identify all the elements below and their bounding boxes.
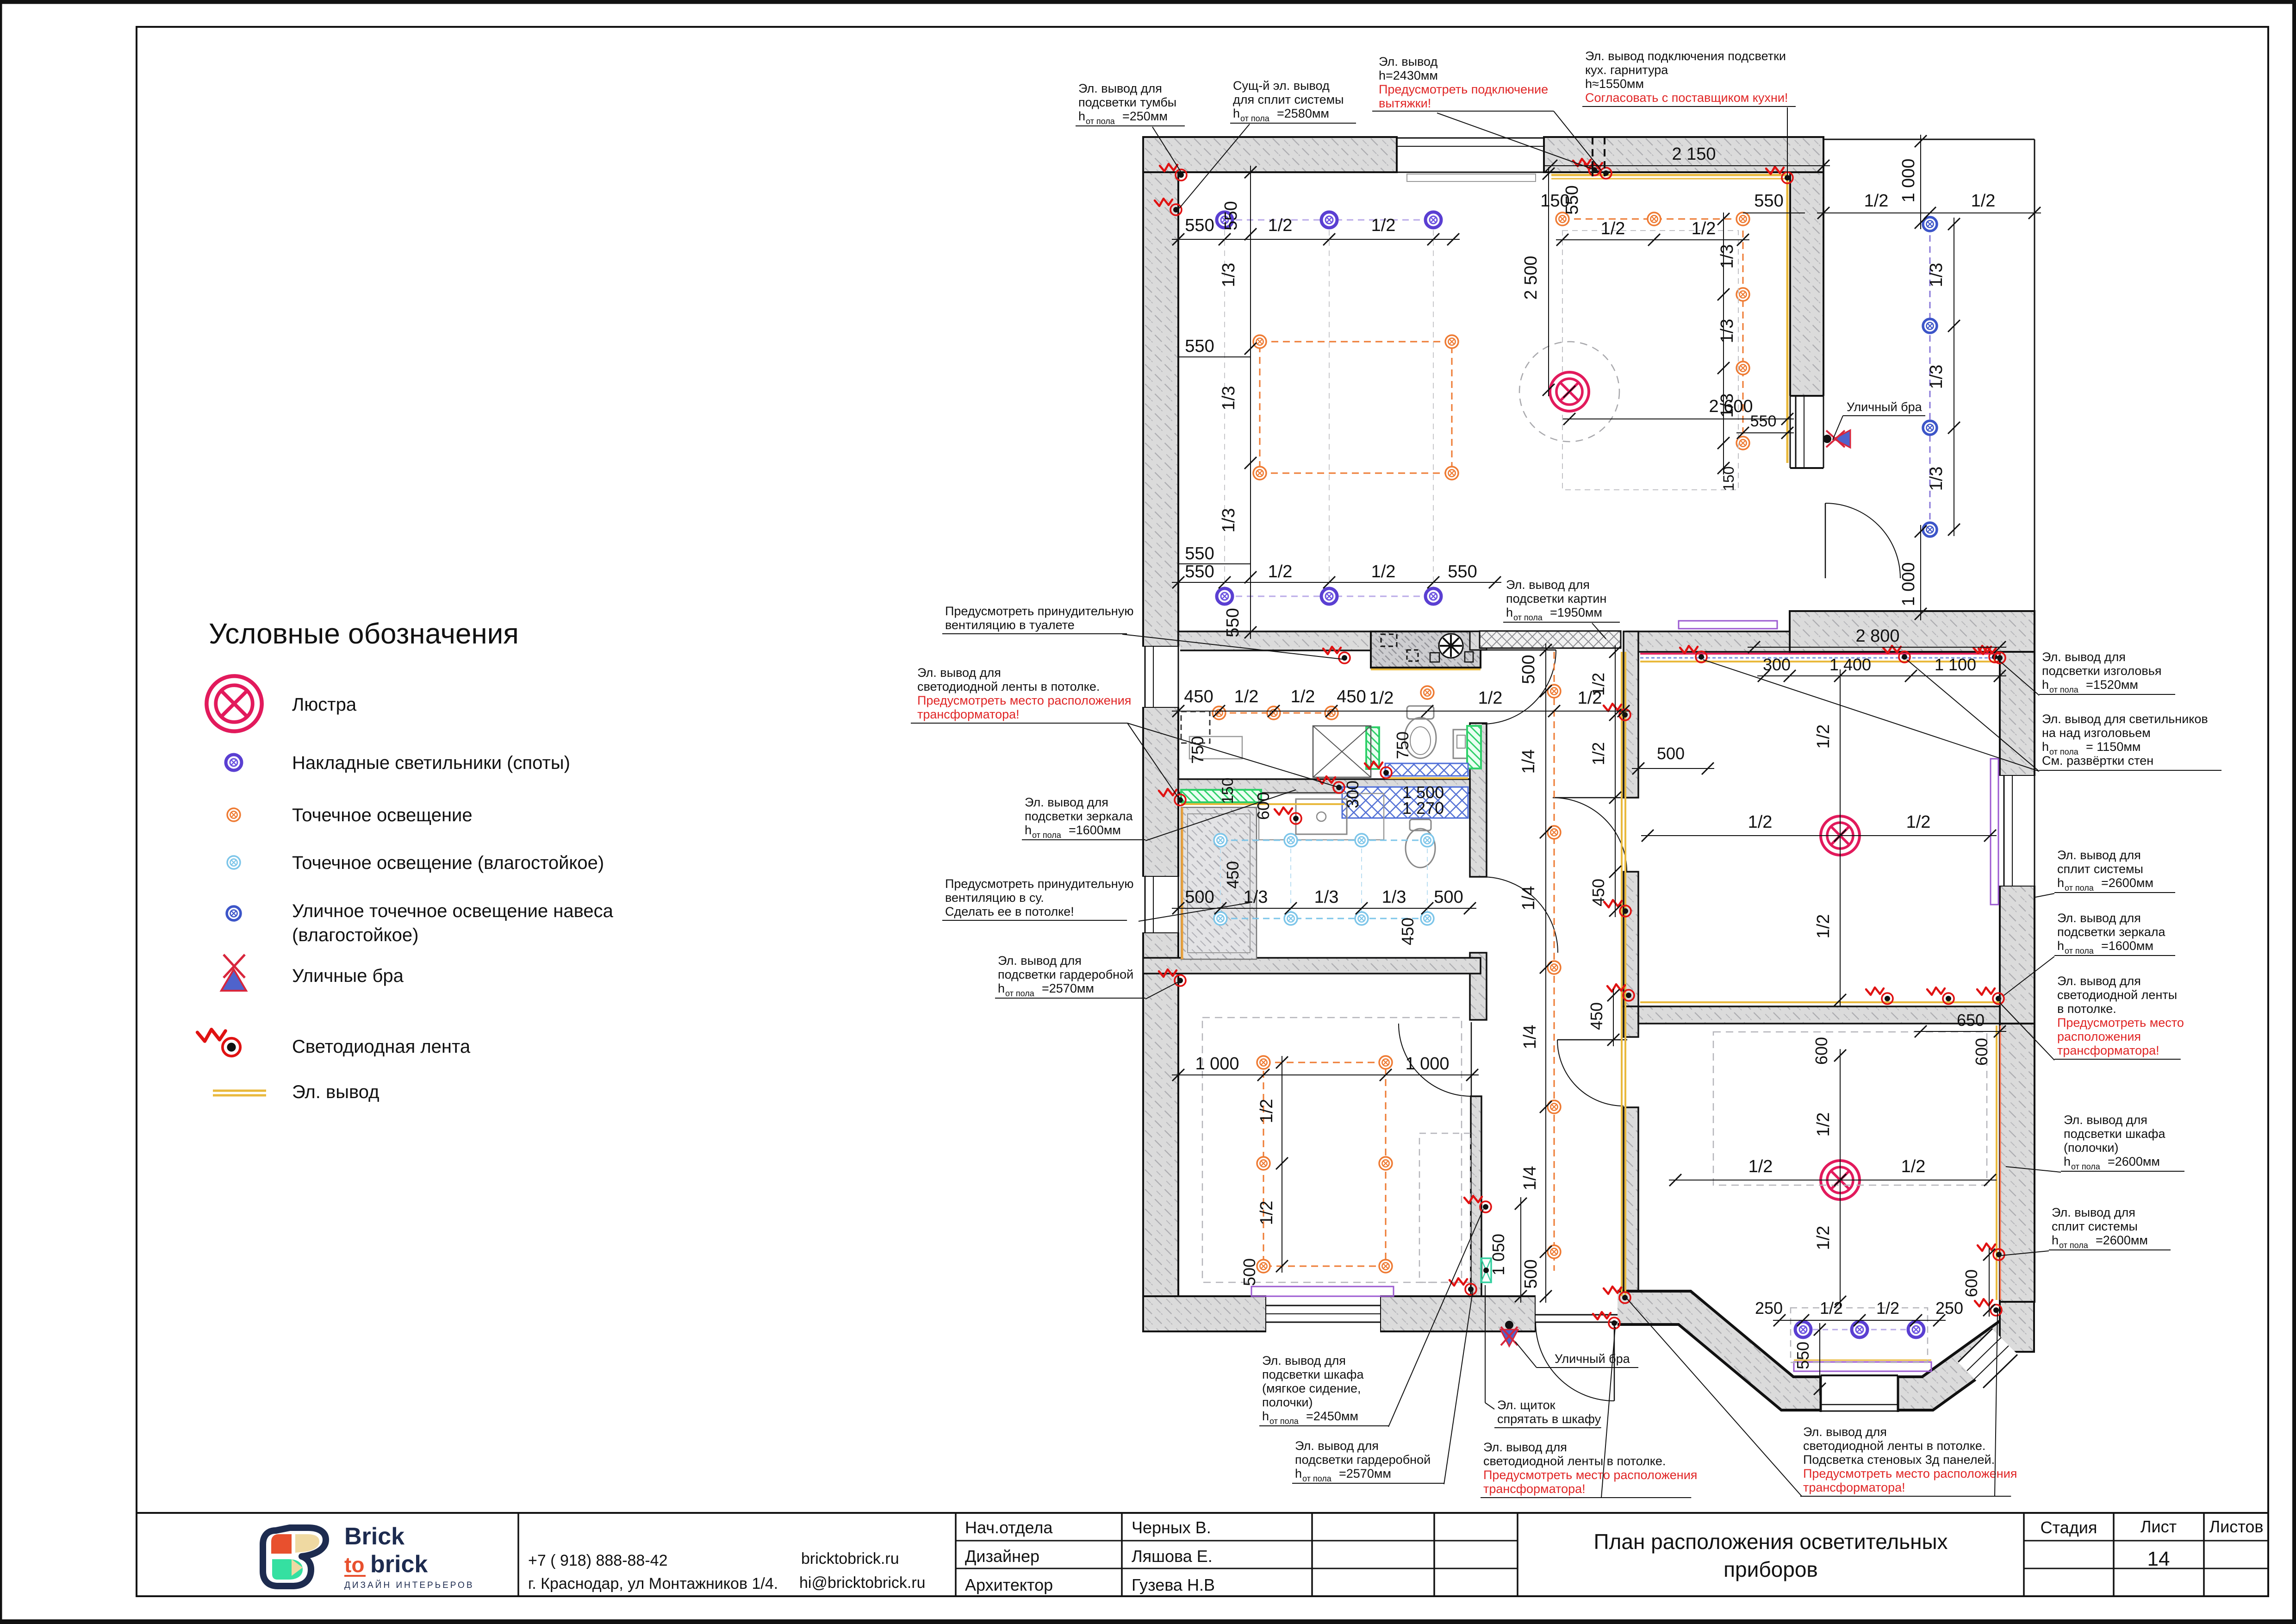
svg-text:Нач.отдела: Нач.отдела (965, 1518, 1053, 1537)
svg-text:Эл. вывод: Эл. вывод (292, 1082, 380, 1102)
svg-text:h: h (1078, 109, 1085, 123)
svg-text:трансформатора!: трансформатора! (917, 707, 1020, 721)
svg-text:300: 300 (1763, 655, 1791, 674)
svg-text:от пола: от пола (1086, 117, 1115, 126)
svg-text:(мягкое сидение,: (мягкое сидение, (1262, 1381, 1361, 1395)
svg-text:1/4: 1/4 (1519, 750, 1538, 774)
svg-text:1/3: 1/3 (1927, 365, 1946, 389)
svg-text:приборов: приборов (1724, 1557, 1818, 1581)
svg-text:трансформатора!: трансформатора! (2057, 1043, 2159, 1057)
svg-text:Ляшова Е.: Ляшова Е. (1132, 1547, 1213, 1566)
svg-text:План расположения осветительны: План расположения осветительных (1593, 1530, 1948, 1554)
svg-text:1 000: 1 000 (1195, 1054, 1239, 1074)
svg-text:+7 ( 918) 888-88-42: +7 ( 918) 888-88-42 (528, 1552, 667, 1569)
svg-text:2 500: 2 500 (1521, 256, 1541, 300)
svg-text:1/2: 1/2 (1814, 1226, 1833, 1250)
svg-text:450: 450 (1337, 687, 1366, 706)
svg-text:1/2: 1/2 (1257, 1099, 1276, 1124)
svg-text:Предусмотреть принудительную: Предусмотреть принудительную (945, 604, 1133, 618)
svg-text:1/4: 1/4 (1519, 886, 1538, 911)
svg-text:bricktobrick.ru: bricktobrick.ru (801, 1550, 899, 1568)
svg-text:=2580мм: =2580мм (1277, 106, 1329, 120)
svg-text:Сущ-й эл. вывод: Сущ-й эл. вывод (1233, 79, 1330, 93)
svg-text:1/2: 1/2 (1257, 1201, 1276, 1225)
svg-text:трансформатора!: трансформатора! (1483, 1482, 1586, 1496)
svg-text:=1520мм: =1520мм (2086, 678, 2138, 692)
svg-text:550: 550 (1185, 216, 1214, 235)
svg-text:Эл. вывод для: Эл. вывод для (2057, 911, 2141, 925)
svg-text:1 050: 1 050 (1489, 1234, 1508, 1275)
svg-text:1/2: 1/2 (1820, 1299, 1843, 1318)
svg-text:2 150: 2 150 (1672, 144, 1716, 164)
svg-text:Согласовать с поставщиком кухн: Согласовать с поставщиком кухни! (1585, 91, 1788, 105)
svg-text:250: 250 (1755, 1299, 1783, 1318)
svg-text:550: 550 (1754, 191, 1783, 211)
svg-text:вытяжки!: вытяжки! (1379, 96, 1431, 110)
svg-text:Подсветка стеновых 3д панелей.: Подсветка стеновых 3д панелей. (1803, 1453, 1995, 1467)
svg-text:h: h (2057, 876, 2064, 890)
svg-text:Дизайнер: Дизайнер (965, 1547, 1039, 1566)
svg-text:Уличный бра: Уличный бра (1847, 400, 1923, 414)
svg-text:=1600мм: =1600мм (2101, 939, 2153, 953)
svg-text:500: 500 (1657, 744, 1685, 763)
svg-text:600: 600 (1812, 1037, 1831, 1065)
svg-text:500: 500 (1185, 887, 1214, 907)
svg-text:750: 750 (1188, 736, 1207, 764)
svg-text:Накладные светильники (споты): Накладные светильники (споты) (292, 753, 570, 773)
svg-text:Предусмотреть подключение: Предусмотреть подключение (1379, 82, 1548, 96)
svg-text:1 000: 1 000 (1405, 1054, 1449, 1074)
svg-text:(полочки): (полочки) (2064, 1141, 2118, 1155)
svg-text:=2600мм: =2600мм (2096, 1233, 2148, 1247)
svg-text:подсветки гардеробной: подсветки гардеробной (1295, 1453, 1431, 1467)
svg-text:h: h (1262, 1409, 1269, 1423)
svg-text:=2570мм: =2570мм (1042, 981, 1094, 995)
svg-text:1/3: 1/3 (1219, 386, 1238, 411)
svg-text:Предусмотреть место: Предусмотреть место (2057, 1016, 2184, 1030)
svg-text:Уличное точечное освещение нав: Уличное точечное освещение навеса (292, 901, 614, 921)
svg-text:светодиодной ленты в потолке.: светодиодной ленты в потолке. (1803, 1439, 1985, 1453)
svg-text:250: 250 (1935, 1299, 1963, 1318)
svg-text:от пола: от пола (2059, 1241, 2089, 1250)
svg-text:1/2: 1/2 (1876, 1299, 1899, 1318)
svg-text:ДИЗАЙН ИНТЕРЬЕРОВ: ДИЗАЙН ИНТЕРЬЕРОВ (344, 1580, 474, 1590)
svg-text:h: h (1233, 106, 1240, 120)
svg-text:550: 550 (1185, 562, 1214, 581)
svg-text:1/3: 1/3 (1717, 244, 1737, 269)
svg-text:=2570мм: =2570мм (1339, 1467, 1391, 1480)
svg-text:от пола: от пола (2065, 883, 2094, 893)
svg-text:h: h (2042, 678, 2049, 692)
svg-text:=250мм: =250мм (1122, 109, 1168, 123)
svg-text:500: 500 (1434, 887, 1463, 907)
svg-text:=1600мм: =1600мм (1069, 823, 1121, 837)
svg-text:(влагостойкое): (влагостойкое) (292, 925, 418, 945)
svg-text:450: 450 (1223, 861, 1242, 889)
svg-text:1/2: 1/2 (1906, 812, 1931, 832)
svg-text:подсветки шкафа: подсветки шкафа (1262, 1368, 1364, 1381)
svg-text:550: 550 (1185, 337, 1214, 356)
svg-text:1/2: 1/2 (1478, 688, 1503, 708)
svg-text:1/3: 1/3 (1927, 467, 1946, 491)
svg-text:1/2: 1/2 (1692, 219, 1716, 238)
svg-text:Предусмотреть место расположен: Предусмотреть место расположения (1483, 1468, 1697, 1482)
svg-text:Эл. вывод подключения подсветк: Эл. вывод подключения подсветки (1585, 49, 1786, 63)
svg-text:от пола: от пола (1032, 831, 1062, 840)
svg-text:14: 14 (2147, 1548, 2170, 1570)
svg-text:150: 150 (1219, 778, 1237, 804)
svg-text:Точечное освещение (влагостойк: Точечное освещение (влагостойкое) (292, 853, 604, 873)
svg-text:Предусмотреть принудительную: Предусмотреть принудительную (945, 877, 1133, 891)
svg-text:1/4: 1/4 (1520, 1025, 1540, 1049)
svg-text:светодиодной ленты в потолке.: светодиодной ленты в потолке. (917, 680, 1100, 693)
svg-text:1/3: 1/3 (1244, 887, 1268, 907)
svg-text:См. развёртки стен: См. развёртки стен (2042, 754, 2153, 768)
svg-text:1/3: 1/3 (1927, 263, 1946, 287)
svg-text:h: h (2064, 1155, 2071, 1168)
svg-text:=2450мм: =2450мм (1306, 1409, 1358, 1423)
svg-text:вентиляцию в туалете: вентиляцию в туалете (945, 618, 1075, 632)
svg-text:1/2: 1/2 (1864, 191, 1889, 211)
svg-text:подсветки гардеробной: подсветки гардеробной (998, 968, 1133, 981)
svg-text:от пола: от пола (1513, 613, 1543, 622)
svg-text:Уличный бра: Уличный бра (1555, 1352, 1630, 1366)
svg-text:1/2: 1/2 (1601, 219, 1625, 238)
svg-text:450: 450 (1589, 879, 1608, 906)
svg-text:Эл. вывод для светильников: Эл. вывод для светильников (2042, 712, 2208, 726)
svg-text:Черных В.: Черных В. (1132, 1518, 1211, 1537)
svg-text:1/2: 1/2 (1814, 914, 1833, 939)
svg-text:Гузева Н.В: Гузева Н.В (1132, 1575, 1215, 1594)
svg-text:1/2: 1/2 (1748, 812, 1773, 832)
svg-text:Эл. вывод для: Эл. вывод для (1803, 1425, 1887, 1439)
svg-text:550: 550 (1750, 412, 1777, 430)
svg-text:1/2: 1/2 (1971, 191, 1996, 211)
svg-text:подсветки изголовья: подсветки изголовья (2042, 664, 2161, 678)
svg-text:Эл. вывод для: Эл. вывод для (1483, 1440, 1567, 1454)
svg-text:светодиодной ленты: светодиодной ленты (2057, 988, 2177, 1002)
svg-text:450: 450 (1587, 1002, 1606, 1030)
svg-text:h: h (998, 981, 1005, 995)
svg-text:Эл. вывод для: Эл. вывод для (1078, 81, 1162, 95)
svg-text:1/3: 1/3 (1717, 319, 1737, 344)
svg-text:от пола: от пола (2049, 685, 2079, 694)
svg-text:Уличные бра: Уличные бра (292, 966, 404, 986)
svg-text:Эл. вывод для: Эл. вывод для (2052, 1206, 2135, 1219)
svg-text:1/4: 1/4 (1520, 1166, 1540, 1191)
svg-text:300: 300 (1343, 781, 1362, 808)
svg-text:1/2: 1/2 (1748, 1157, 1773, 1176)
svg-text:от пола: от пола (1005, 989, 1035, 998)
svg-text:сплит системы: сплит системы (2052, 1219, 2138, 1233)
svg-text:расположения: расположения (2057, 1030, 2141, 1043)
svg-text:1/2: 1/2 (1371, 562, 1396, 581)
svg-text:to: to (344, 1553, 364, 1577)
svg-text:Эл. вывод для: Эл. вывод для (2057, 848, 2141, 862)
svg-text:Эл. щиток: Эл. щиток (1497, 1398, 1556, 1412)
svg-text:h: h (1025, 823, 1032, 837)
svg-text:2 800: 2 800 (1855, 626, 1899, 646)
svg-text:h=2430мм: h=2430мм (1379, 69, 1438, 82)
svg-text:трансформатора!: трансформатора! (1803, 1480, 1905, 1494)
svg-text:550: 550 (1185, 544, 1214, 563)
svg-text:1/2: 1/2 (1268, 216, 1293, 235)
svg-text:Brick: Brick (344, 1523, 404, 1550)
svg-text:h: h (2052, 1233, 2059, 1247)
svg-text:Эл. вывод для: Эл. вывод для (998, 954, 1082, 968)
svg-text:от пола: от пола (2071, 1162, 2101, 1171)
svg-text:Сделать ее в потолке!: Сделать ее в потолке! (945, 905, 1074, 918)
svg-text:brick: brick (370, 1551, 428, 1578)
svg-text:сплит системы: сплит системы (2057, 862, 2143, 876)
svg-text:Эл. вывод для: Эл. вывод для (2064, 1113, 2147, 1127)
svg-text:= 1150мм: = 1150мм (2086, 740, 2140, 754)
svg-text:550: 550 (1793, 1342, 1812, 1369)
svg-text:450: 450 (1398, 918, 1417, 945)
svg-text:550: 550 (1221, 201, 1241, 230)
svg-text:Стадия: Стадия (2041, 1518, 2097, 1537)
svg-text:подсветки картин: подсветки картин (1506, 592, 1606, 606)
svg-text:Эл. вывод для: Эл. вывод для (2042, 650, 2126, 664)
svg-text:1/3: 1/3 (1219, 508, 1238, 533)
svg-text:для сплит системы: для сплит системы (1233, 93, 1344, 106)
svg-text:600: 600 (1962, 1269, 1981, 1297)
svg-text:на над изголовьем: на над изголовьем (2042, 726, 2151, 740)
svg-text:подсветки шкафа: подсветки шкафа (2064, 1127, 2166, 1141)
svg-text:1/2: 1/2 (1589, 742, 1608, 765)
svg-text:Эл. вывод для: Эл. вывод для (1025, 795, 1108, 809)
svg-text:1/2: 1/2 (1901, 1157, 1926, 1176)
svg-text:Эл. вывод для: Эл. вывод для (1295, 1439, 1379, 1453)
svg-text:подсветки зеркала: подсветки зеркала (1025, 809, 1133, 823)
svg-text:1/3: 1/3 (1219, 263, 1238, 287)
svg-text:Эл. вывод для: Эл. вывод для (1262, 1354, 1346, 1368)
svg-text:750: 750 (1393, 731, 1412, 759)
svg-text:500: 500 (1521, 1259, 1541, 1288)
svg-text:1 100: 1 100 (1935, 655, 1976, 674)
svg-text:Светодиодная лента: Светодиодная лента (292, 1037, 471, 1057)
svg-text:500: 500 (1240, 1258, 1259, 1286)
svg-text:Листов: Листов (2209, 1517, 2264, 1536)
svg-text:от пола: от пола (1240, 114, 1270, 123)
svg-text:=2600мм: =2600мм (2101, 876, 2153, 890)
svg-text:1 400: 1 400 (1829, 655, 1871, 674)
svg-text:500: 500 (1519, 655, 1538, 684)
svg-text:1/2: 1/2 (1234, 687, 1259, 706)
svg-text:600: 600 (1972, 1038, 1991, 1066)
svg-text:h: h (2057, 939, 2064, 953)
svg-text:1 270: 1 270 (1402, 799, 1444, 818)
svg-text:Лист: Лист (2140, 1517, 2177, 1536)
svg-text:от пола: от пола (2065, 946, 2094, 956)
svg-text:г. Краснодар, ул Монтажников: г. Краснодар, ул Монтажников 1/4. (528, 1575, 778, 1593)
svg-text:2 600: 2 600 (1709, 397, 1753, 416)
svg-text:=1950мм: =1950мм (1550, 606, 1602, 619)
svg-text:от пола: от пола (1302, 1474, 1332, 1483)
svg-text:вентиляцию в су.: вентиляцию в су. (945, 891, 1044, 905)
svg-text:спрятать в шкафу: спрятать в шкафу (1497, 1412, 1601, 1426)
svg-text:кух. гарнитура: кух. гарнитура (1585, 63, 1668, 77)
svg-text:h: h (1506, 606, 1513, 619)
svg-text:450: 450 (1184, 687, 1213, 706)
svg-text:1/2: 1/2 (1371, 216, 1396, 235)
svg-text:1 000: 1 000 (1899, 158, 1918, 202)
svg-text:от пола: от пола (1269, 1417, 1299, 1426)
svg-text:Условные обозначения: Условные обозначения (209, 618, 519, 650)
svg-text:1/2: 1/2 (1589, 673, 1608, 696)
svg-text:в потолке.: в потолке. (2057, 1002, 2116, 1016)
svg-text:Люстра: Люстра (292, 694, 357, 715)
svg-text:h≈1550мм: h≈1550мм (1585, 77, 1644, 91)
svg-text:Эл. вывод для: Эл. вывод для (1506, 578, 1590, 592)
svg-text:подсветки зеркала: подсветки зеркала (2057, 925, 2166, 939)
svg-text:Эл. вывод для: Эл. вывод для (2057, 974, 2141, 988)
svg-text:Эл. вывод: Эл. вывод (1379, 55, 1437, 69)
svg-text:150: 150 (1720, 466, 1737, 491)
svg-text:полочки): полочки) (1262, 1395, 1313, 1409)
svg-text:h: h (2042, 740, 2049, 754)
svg-text:Эл. вывод для: Эл. вывод для (917, 666, 1001, 680)
svg-text:Архитектор: Архитектор (965, 1575, 1053, 1594)
svg-text:Предусмотреть место расположен: Предусмотреть место расположения (917, 693, 1131, 707)
svg-text:=2600мм: =2600мм (2108, 1155, 2160, 1168)
svg-text:hi@bricktobrick.ru: hi@bricktobrick.ru (799, 1574, 926, 1592)
svg-text:1/2: 1/2 (1268, 562, 1293, 581)
svg-text:600: 600 (1254, 792, 1273, 820)
svg-text:1/2: 1/2 (1369, 688, 1394, 708)
svg-text:550: 550 (1223, 608, 1243, 637)
svg-text:подсветки тумбы: подсветки тумбы (1078, 95, 1176, 109)
svg-text:150: 150 (1540, 191, 1569, 211)
svg-text:1/2: 1/2 (1291, 687, 1315, 706)
svg-text:светодиодной ленты в потолке.: светодиодной ленты в потолке. (1483, 1454, 1666, 1468)
svg-text:h: h (1295, 1467, 1302, 1480)
svg-text:1/2: 1/2 (1814, 725, 1833, 749)
svg-text:1/2: 1/2 (1814, 1112, 1833, 1137)
svg-text:Точечное освещение: Точечное освещение (292, 805, 473, 825)
svg-text:1/3: 1/3 (1382, 887, 1406, 907)
svg-text:Предусмотреть место расположен: Предусмотреть место расположения (1803, 1467, 2017, 1480)
svg-text:1 000: 1 000 (1899, 562, 1918, 606)
svg-text:650: 650 (1957, 1011, 1985, 1030)
svg-text:550: 550 (1448, 562, 1477, 581)
svg-text:1/3: 1/3 (1314, 887, 1339, 907)
